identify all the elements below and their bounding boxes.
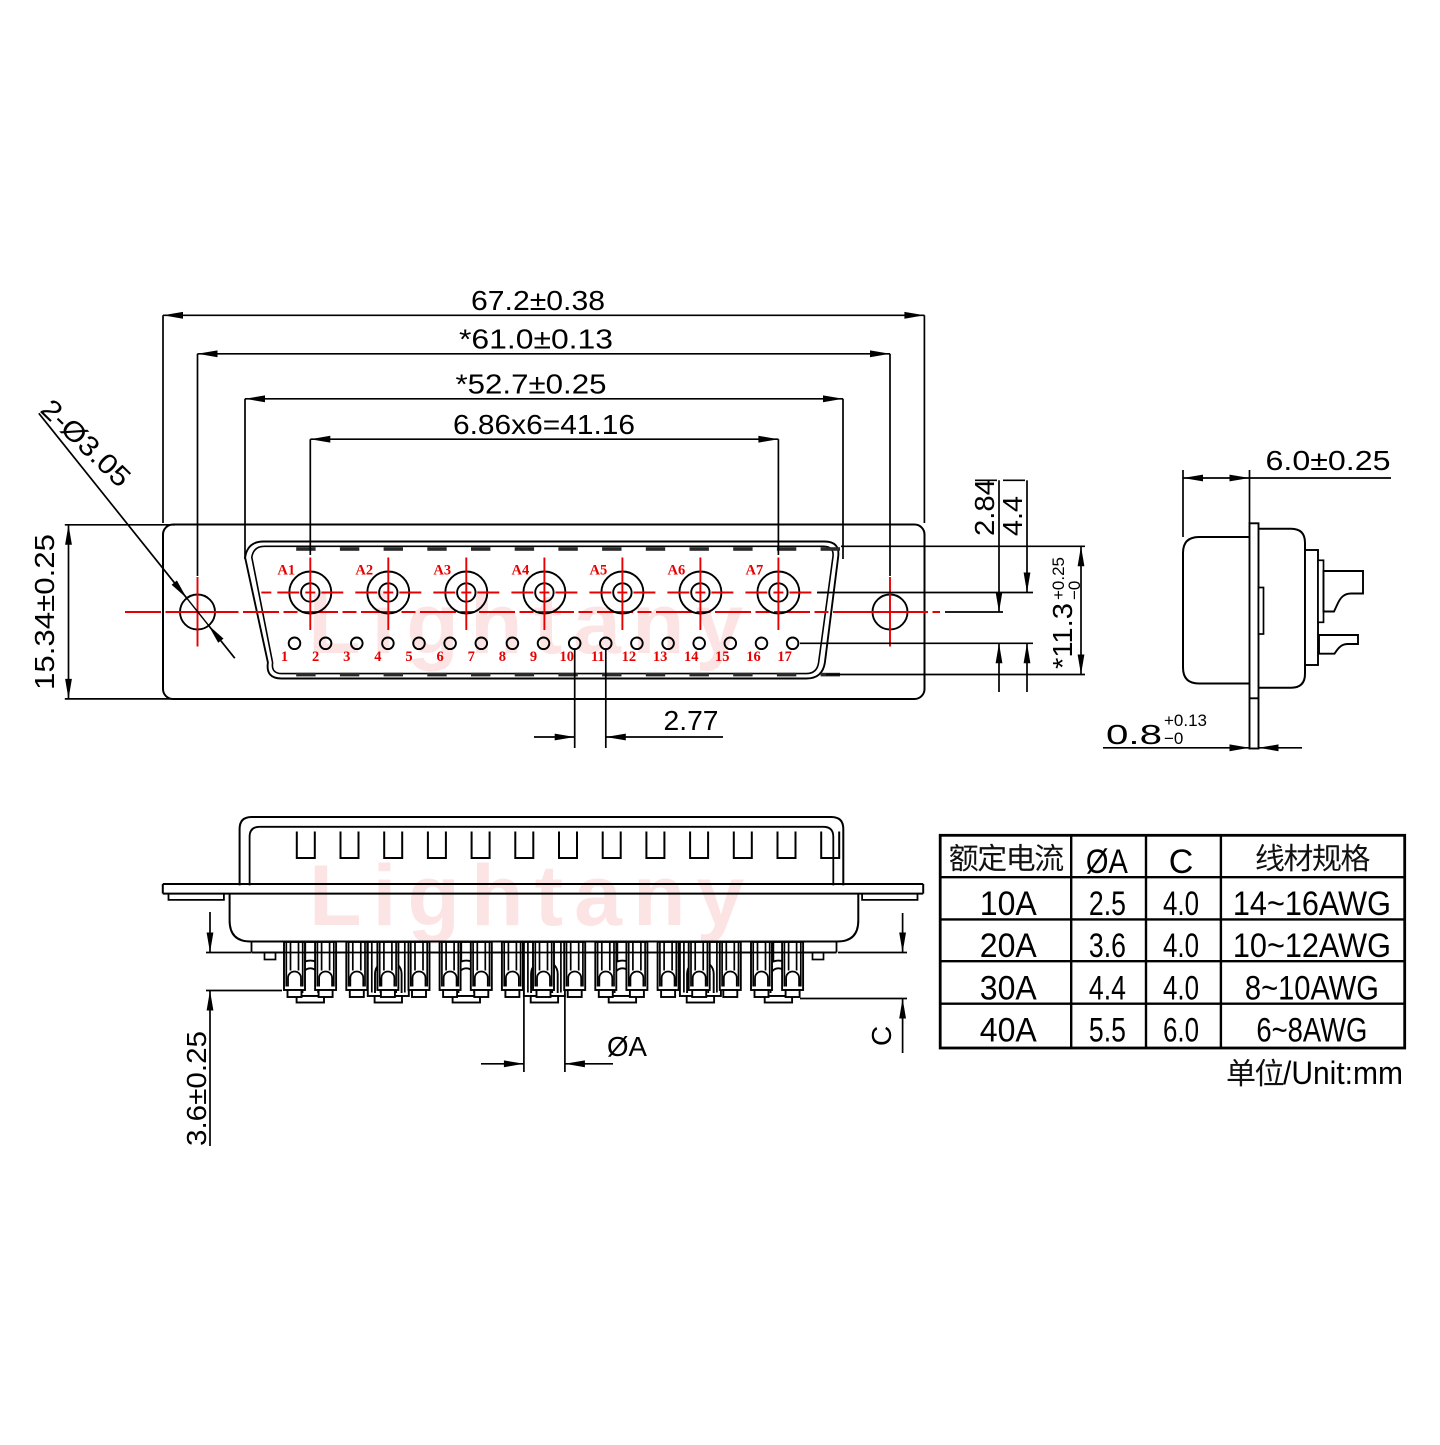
svg-text:+0.13: +0.13 [1164,711,1207,730]
svg-text:12: 12 [622,649,637,665]
svg-text:−0: −0 [1164,729,1183,748]
svg-text:2.84: 2.84 [969,479,1000,536]
svg-text:6~8AWG: 6~8AWG [1256,1012,1367,1050]
svg-text:4.4: 4.4 [997,496,1028,536]
svg-text:14~16AWG: 14~16AWG [1233,885,1391,923]
svg-text:A1: A1 [277,563,295,579]
svg-text:14: 14 [684,649,699,665]
svg-text:9: 9 [530,649,537,665]
svg-text:−0: −0 [1065,581,1084,600]
svg-text:C: C [866,1026,897,1046]
svg-text:ØA: ØA [1086,843,1128,881]
svg-text:16: 16 [746,649,761,665]
svg-text:*11.3: *11.3 [1047,603,1078,669]
svg-text:4.0: 4.0 [1163,969,1199,1007]
svg-text:4.0: 4.0 [1163,927,1199,965]
svg-text:20A: 20A [980,927,1037,965]
svg-text:A6: A6 [668,563,686,579]
svg-text:6.86x6=41.16: 6.86x6=41.16 [453,409,635,440]
svg-text:A5: A5 [590,563,608,579]
svg-text:10A: 10A [980,885,1037,923]
svg-text:3.6±0.25: 3.6±0.25 [181,1031,212,1146]
svg-text:3: 3 [343,649,350,665]
svg-text:A2: A2 [355,563,373,579]
svg-text:6.0±0.25: 6.0±0.25 [1266,445,1391,476]
svg-text:15.34±0.25: 15.34±0.25 [29,534,60,690]
svg-text:1: 1 [281,649,288,665]
svg-text:40A: 40A [980,1012,1037,1050]
svg-text:2.5: 2.5 [1089,885,1126,923]
svg-text:0.8: 0.8 [1106,719,1162,750]
svg-text:11: 11 [591,649,605,665]
svg-text:*61.0±0.13: *61.0±0.13 [459,324,613,355]
svg-text:4.0: 4.0 [1163,885,1199,923]
svg-text:C: C [1169,843,1194,881]
svg-text:8: 8 [499,649,506,665]
svg-text:*52.7±0.25: *52.7±0.25 [456,369,607,400]
svg-text:6: 6 [436,649,443,665]
svg-text:/Unit:mm: /Unit:mm [1283,1055,1403,1091]
svg-text:A4: A4 [512,563,530,579]
svg-text:ØA: ØA [607,1031,647,1062]
svg-text:5.5: 5.5 [1089,1012,1126,1050]
svg-text:30A: 30A [980,969,1037,1007]
svg-text:2: 2 [312,649,319,665]
svg-text:4.4: 4.4 [1089,969,1126,1007]
svg-text:8~10AWG: 8~10AWG [1245,969,1379,1007]
svg-text:2.77: 2.77 [664,705,719,736]
svg-text:A7: A7 [746,563,764,579]
svg-text:5: 5 [405,649,412,665]
svg-text:10: 10 [559,649,574,665]
svg-text:17: 17 [777,649,792,665]
svg-text:4: 4 [374,649,381,665]
svg-text:67.2±0.38: 67.2±0.38 [471,285,605,316]
svg-text:3.6: 3.6 [1089,927,1126,965]
svg-text:A3: A3 [433,563,451,579]
svg-text:Lightany: Lightany [309,848,755,944]
svg-text:15: 15 [715,649,730,665]
svg-text:6.0: 6.0 [1163,1012,1199,1050]
svg-text:10~12AWG: 10~12AWG [1233,927,1391,965]
svg-text:7: 7 [468,649,475,665]
svg-text:13: 13 [653,649,668,665]
